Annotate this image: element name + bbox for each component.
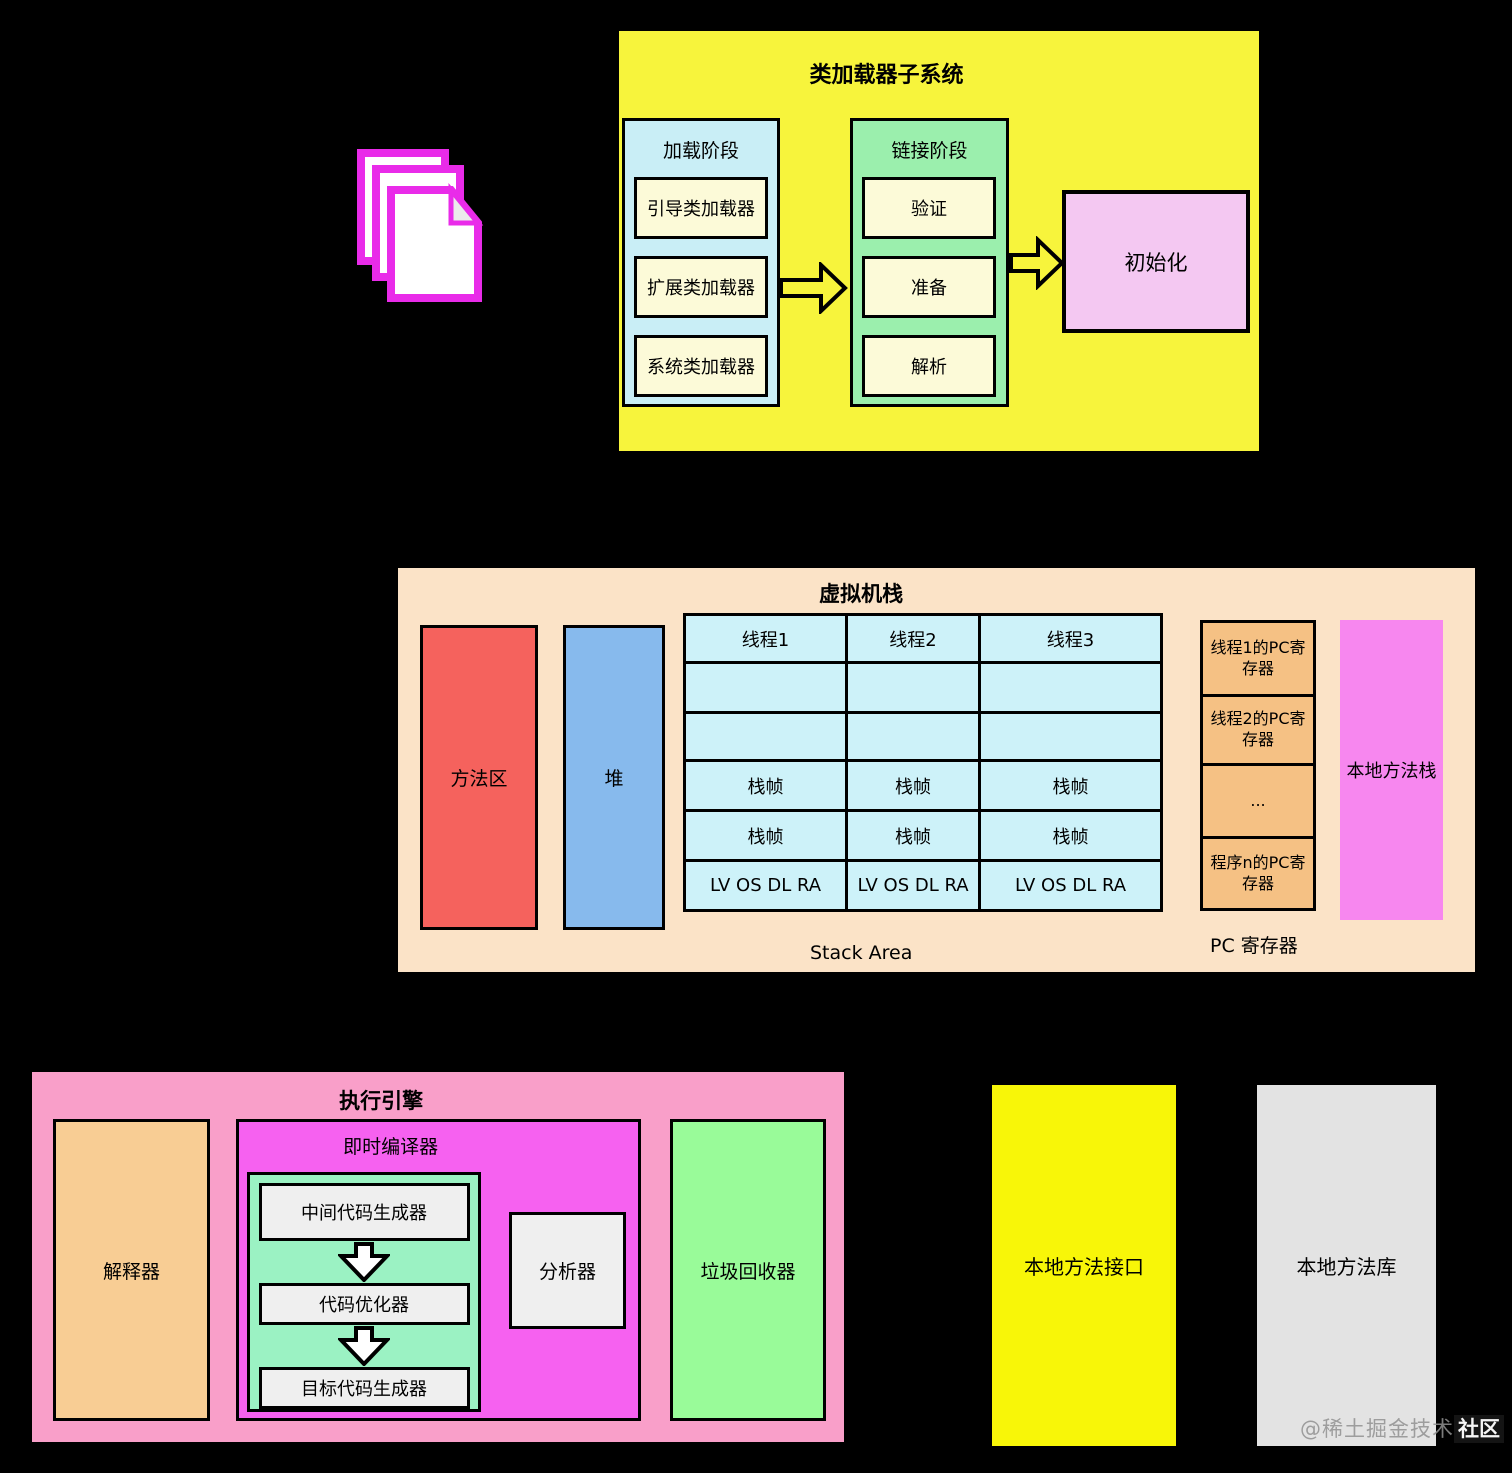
empty-cell (847, 663, 980, 713)
pipeline-down-arrow (338, 1326, 390, 1366)
table-row (685, 713, 1162, 761)
execution-engine-title: 执行引擎 (339, 1085, 423, 1115)
execution-engine-box: 执行引擎 解释器 即时编译器 中间代码生成器 代码优化器 目标代码生成器 分析器… (28, 1068, 848, 1446)
pipeline-down-arrow (338, 1242, 390, 1282)
stack-frame-cell: 栈帧 (685, 761, 847, 811)
pc-register-caption: PC 寄存器 (1210, 931, 1298, 958)
linking-to-init-arrow (1009, 236, 1065, 290)
method-area-box: 方法区 (420, 625, 538, 930)
thread1-header-cell: 线程1 (685, 615, 847, 663)
jvm-architecture-diagram: 类加载器子系统 加载阶段 引导类加载器 扩展类加载器 系统类加载器 链接阶段 验… (0, 0, 1512, 1473)
stack-frame-cell: 栈帧 (847, 811, 980, 861)
lv-os-dl-ra-cell: LV OS DL RA (980, 861, 1162, 911)
garbage-collector-box: 垃圾回收器 (670, 1119, 826, 1421)
lv-os-dl-ra-cell: LV OS DL RA (847, 861, 980, 911)
loading-to-linking-arrow (779, 262, 849, 314)
code-optimizer-box: 代码优化器 (259, 1283, 470, 1325)
empty-cell (980, 713, 1162, 761)
watermark-suffix: 社区 (1454, 1415, 1504, 1443)
program-n-pc-register-cell: 程序n的PC寄存器 (1200, 836, 1316, 911)
class-loader-subsystem-box: 类加载器子系统 加载阶段 引导类加载器 扩展类加载器 系统类加载器 链接阶段 验… (615, 27, 1263, 455)
jit-compiler-title: 即时编译器 (343, 1132, 438, 1159)
watermark-prefix: @稀土掘金技术 (1300, 1417, 1454, 1441)
target-code-generator-box: 目标代码生成器 (259, 1367, 470, 1409)
stack-frame-cell: 栈帧 (980, 811, 1162, 861)
watermark: @稀土掘金技术社区 (1300, 1413, 1504, 1443)
heap-box: 堆 (563, 625, 665, 930)
initialization-box: 初始化 (1062, 190, 1250, 333)
empty-cell (685, 713, 847, 761)
loading-phase-title: 加载阶段 (625, 136, 777, 163)
thread-stack-table: 线程1 线程2 线程3 栈帧 栈帧 栈帧 (683, 613, 1163, 912)
intermediate-code-generator-box: 中间代码生成器 (259, 1183, 470, 1241)
vm-stack-box: 虚拟机栈 方法区 堆 线程1 线程2 线程3 (395, 565, 1478, 975)
jit-compiler-box: 即时编译器 中间代码生成器 代码优化器 目标代码生成器 分析器 (236, 1119, 641, 1421)
thread2-pc-register-cell: 线程2的PC寄存器 (1200, 694, 1316, 766)
verify-box: 验证 (862, 177, 996, 239)
thread1-pc-register-cell: 线程1的PC寄存器 (1200, 620, 1316, 697)
class-loader-subsystem-title: 类加载器子系统 (810, 57, 964, 89)
class-files-icon (352, 146, 484, 308)
vm-stack-title: 虚拟机栈 (819, 578, 903, 608)
table-row: 栈帧 栈帧 栈帧 (685, 811, 1162, 861)
prepare-box: 准备 (862, 256, 996, 318)
table-row: 线程1 线程2 线程3 (685, 615, 1162, 663)
linking-phase-title: 链接阶段 (853, 136, 1006, 163)
resolve-box: 解析 (862, 335, 996, 397)
system-classloader-box: 系统类加载器 (634, 335, 768, 397)
native-method-library-box: 本地方法库 (1255, 1083, 1438, 1448)
table-row: 栈帧 栈帧 栈帧 (685, 761, 1162, 811)
interpreter-box: 解释器 (53, 1119, 210, 1421)
thread3-header-cell: 线程3 (980, 615, 1162, 663)
doc-page-fold (451, 190, 478, 223)
thread2-header-cell: 线程2 (847, 615, 980, 663)
loading-phase-box: 加载阶段 引导类加载器 扩展类加载器 系统类加载器 (622, 118, 780, 407)
empty-cell (847, 713, 980, 761)
table-row: LV OS DL RA LV OS DL RA LV OS DL RA (685, 861, 1162, 911)
stack-frame-cell: 栈帧 (685, 811, 847, 861)
stack-frame-cell: 栈帧 (980, 761, 1162, 811)
extension-classloader-box: 扩展类加载器 (634, 256, 768, 318)
stack-area-label: Stack Area (810, 942, 912, 964)
empty-cell (980, 663, 1162, 713)
jit-pipeline-box: 中间代码生成器 代码优化器 目标代码生成器 (247, 1172, 481, 1412)
lv-os-dl-ra-cell: LV OS DL RA (685, 861, 847, 911)
bootstrap-classloader-box: 引导类加载器 (634, 177, 768, 239)
stack-frame-cell: 栈帧 (847, 761, 980, 811)
empty-cell (685, 663, 847, 713)
native-method-stack-box: 本地方法栈 (1340, 620, 1443, 920)
pc-register-column: 线程1的PC寄存器 线程2的PC寄存器 ... 程序n的PC寄存器 (1200, 620, 1316, 911)
native-method-interface-box: 本地方法接口 (990, 1083, 1178, 1448)
table-row (685, 663, 1162, 713)
ellipsis-pc-register-cell: ... (1200, 763, 1316, 839)
profiler-box: 分析器 (509, 1212, 626, 1329)
linking-phase-box: 链接阶段 验证 准备 解析 (850, 118, 1009, 407)
